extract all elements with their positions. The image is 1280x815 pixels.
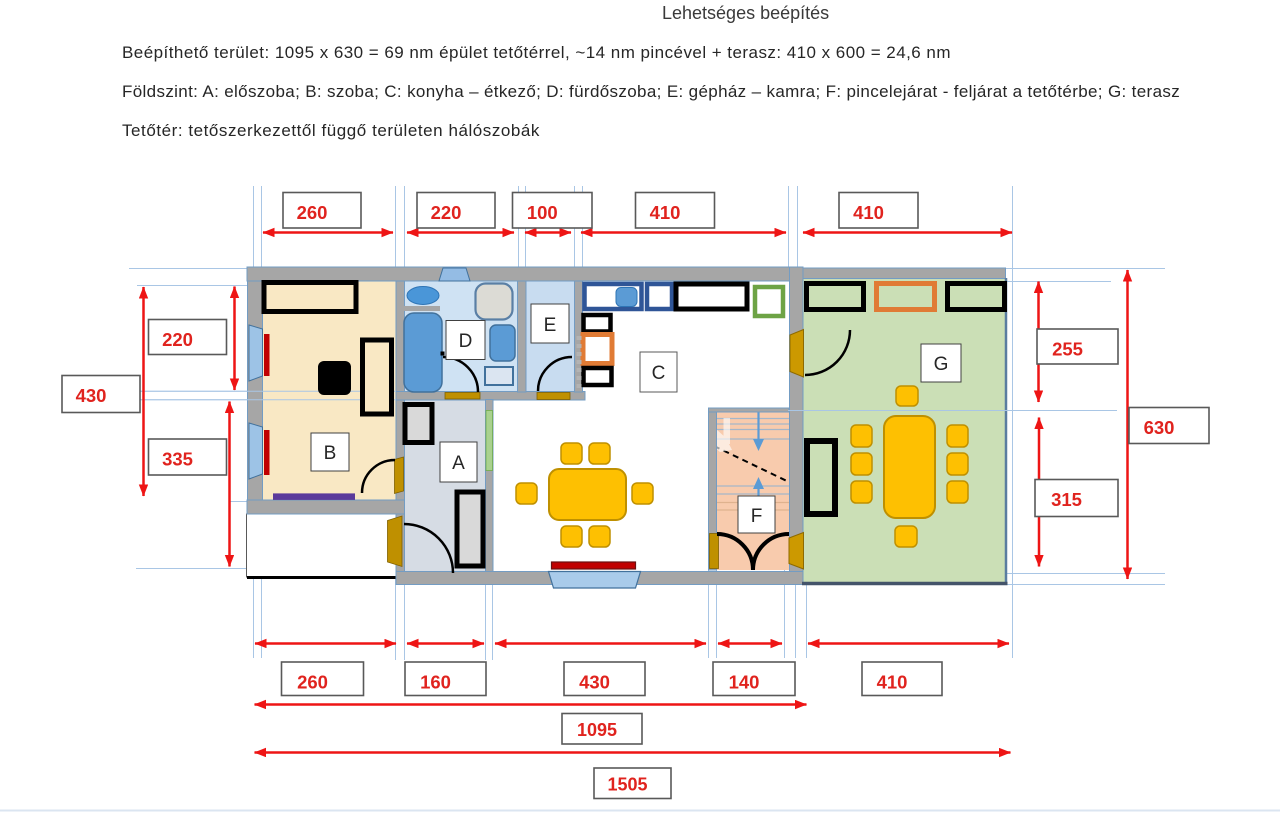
svg-text:410: 410 [877, 672, 908, 693]
svg-text:260: 260 [297, 202, 328, 223]
svg-text:335: 335 [162, 449, 193, 470]
svg-text:315: 315 [1051, 489, 1082, 510]
svg-text:1505: 1505 [607, 775, 647, 795]
svg-text:E: E [544, 315, 557, 336]
svg-text:430: 430 [579, 672, 610, 693]
svg-text:1095: 1095 [577, 720, 617, 740]
svg-text:430: 430 [76, 385, 107, 406]
svg-text:C: C [652, 363, 666, 384]
svg-text:D: D [459, 331, 473, 352]
svg-text:410: 410 [853, 202, 884, 223]
svg-text:B: B [324, 443, 337, 464]
svg-text:260: 260 [297, 672, 328, 693]
svg-text:140: 140 [729, 672, 760, 693]
svg-text:255: 255 [1052, 339, 1083, 360]
svg-text:220: 220 [162, 329, 193, 350]
svg-text:160: 160 [420, 672, 451, 693]
svg-text:A: A [452, 453, 465, 474]
svg-text:410: 410 [650, 202, 681, 223]
svg-text:G: G [934, 354, 949, 375]
svg-text:630: 630 [1144, 417, 1175, 438]
svg-text:F: F [751, 506, 763, 527]
svg-text:100: 100 [527, 202, 558, 223]
svg-text:220: 220 [431, 202, 462, 223]
